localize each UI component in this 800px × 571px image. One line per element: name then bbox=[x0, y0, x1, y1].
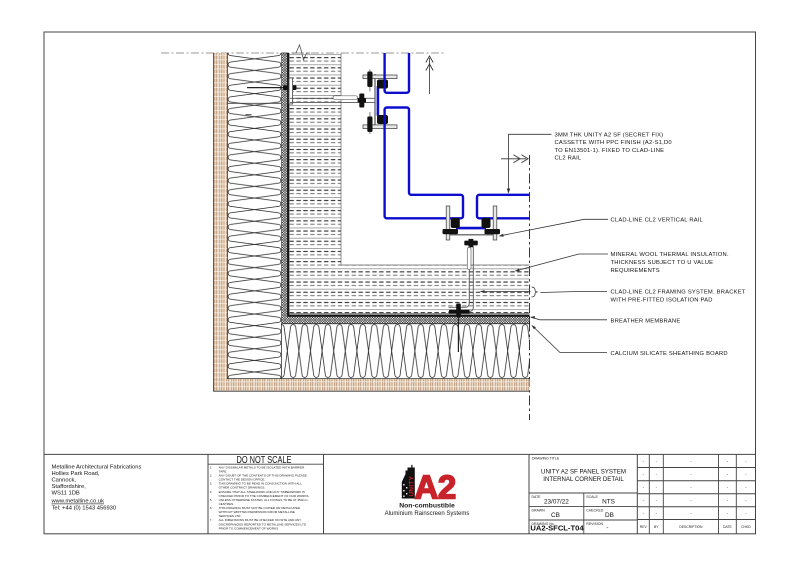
svg-text:CASSETTE WITH PPC FINISH (A2-S: CASSETTE WITH PPC FINISH (A2-S1,D0 bbox=[555, 140, 672, 146]
svg-text:Metalline Architectural Fabric: Metalline Architectural Fabrications bbox=[52, 464, 142, 470]
svg-text:2.: 2. bbox=[210, 474, 213, 478]
svg-text:DRAWING TITLE: DRAWING TITLE bbox=[532, 457, 560, 461]
svg-text:Aluminium Rainscreen Systems: Aluminium Rainscreen Systems bbox=[385, 511, 470, 517]
svg-text:4.: 4. bbox=[210, 490, 213, 494]
svg-text:CHKD: CHKD bbox=[741, 525, 751, 529]
svg-text:WITH PRE-FITTED ISOLATION PAD: WITH PRE-FITTED ISOLATION PAD bbox=[611, 298, 713, 304]
svg-text:23/07/22: 23/07/22 bbox=[544, 499, 569, 506]
svg-text:3.: 3. bbox=[210, 482, 213, 486]
svg-text:WS11 1DB: WS11 1DB bbox=[52, 490, 80, 496]
svg-text:CLAD-LINE CL2 FRAMING SYSTEM.: CLAD-LINE CL2 FRAMING SYSTEM. BRACKET bbox=[611, 290, 746, 296]
svg-text:NTS: NTS bbox=[602, 499, 615, 506]
svg-text:DATE: DATE bbox=[723, 525, 733, 529]
svg-text:UNITY A2 SF PANEL SYSTEM: UNITY A2 SF PANEL SYSTEM bbox=[541, 469, 626, 476]
svg-text:Cannock,: Cannock, bbox=[52, 477, 77, 483]
svg-text:DESCRIPTION: DESCRIPTION bbox=[679, 525, 703, 529]
svg-text:Hollies Park Road,: Hollies Park Road, bbox=[52, 471, 100, 477]
svg-text:SCALE: SCALE bbox=[586, 495, 598, 499]
svg-text:www.metalline.co.uk: www.metalline.co.uk bbox=[51, 499, 105, 505]
svg-text:1.: 1. bbox=[210, 465, 213, 469]
svg-text:CB: CB bbox=[551, 512, 560, 519]
svg-text:REVISION: REVISION bbox=[586, 522, 603, 526]
svg-text:6.: 6. bbox=[210, 506, 213, 510]
svg-text:DATE: DATE bbox=[532, 495, 542, 499]
svg-text:TO EN13501-1). FIXED TO CLAD-L: TO EN13501-1). FIXED TO CLAD-LINE bbox=[555, 148, 665, 154]
svg-text:3MM THK UNITY A2 SF (SECRET FI: 3MM THK UNITY A2 SF (SECRET FIX) bbox=[555, 132, 664, 138]
svg-text:MINERAL WOOL THERMAL INSULATIO: MINERAL WOOL THERMAL INSULATION. bbox=[611, 252, 729, 258]
svg-text:THICKNESS SUBJECT TO U VALUE: THICKNESS SUBJECT TO U VALUE bbox=[611, 260, 714, 266]
svg-text:Tel: +44 (0) 1543 456930: Tel: +44 (0) 1543 456930 bbox=[52, 506, 117, 512]
svg-text:REQUIREMENTS: REQUIREMENTS bbox=[611, 268, 660, 274]
svg-text:BREATHER MEMBRANE: BREATHER MEMBRANE bbox=[611, 319, 681, 325]
svg-text:CHECKED: CHECKED bbox=[586, 508, 604, 512]
svg-text:CLAD-LINE CL2 VERTICAL RAIL: CLAD-LINE CL2 VERTICAL RAIL bbox=[611, 217, 704, 223]
svg-text:Staffordshire,: Staffordshire, bbox=[52, 484, 87, 490]
svg-text:PRIOR TO COMMENCEMENT OF WORKS: PRIOR TO COMMENCEMENT OF WORKS bbox=[219, 526, 279, 530]
svg-text:-: - bbox=[606, 524, 608, 531]
svg-text:UA2-SFCL-T04: UA2-SFCL-T04 bbox=[530, 524, 584, 533]
svg-text:5.: 5. bbox=[210, 498, 213, 502]
svg-text:CALCIUM SILICATE SHEATHING BOA: CALCIUM SILICATE SHEATHING BOARD bbox=[611, 351, 728, 357]
svg-text:DRAWN: DRAWN bbox=[532, 508, 546, 512]
svg-text:CL2 RAIL: CL2 RAIL bbox=[555, 156, 582, 162]
svg-text:7.: 7. bbox=[210, 518, 213, 522]
svg-text:Non-combustible: Non-combustible bbox=[399, 503, 455, 510]
svg-text:DB: DB bbox=[605, 512, 614, 519]
svg-text:BY: BY bbox=[654, 525, 659, 529]
svg-text:REV: REV bbox=[640, 525, 648, 529]
svg-text:A2: A2 bbox=[415, 468, 456, 505]
svg-text:INTERNAL CORNER DETAIL: INTERNAL CORNER DETAIL bbox=[543, 476, 624, 483]
svg-text:ANY DISSIMILAR METALS TO BE IS: ANY DISSIMILAR METALS TO BE ISOLATED WIT… bbox=[219, 465, 306, 469]
